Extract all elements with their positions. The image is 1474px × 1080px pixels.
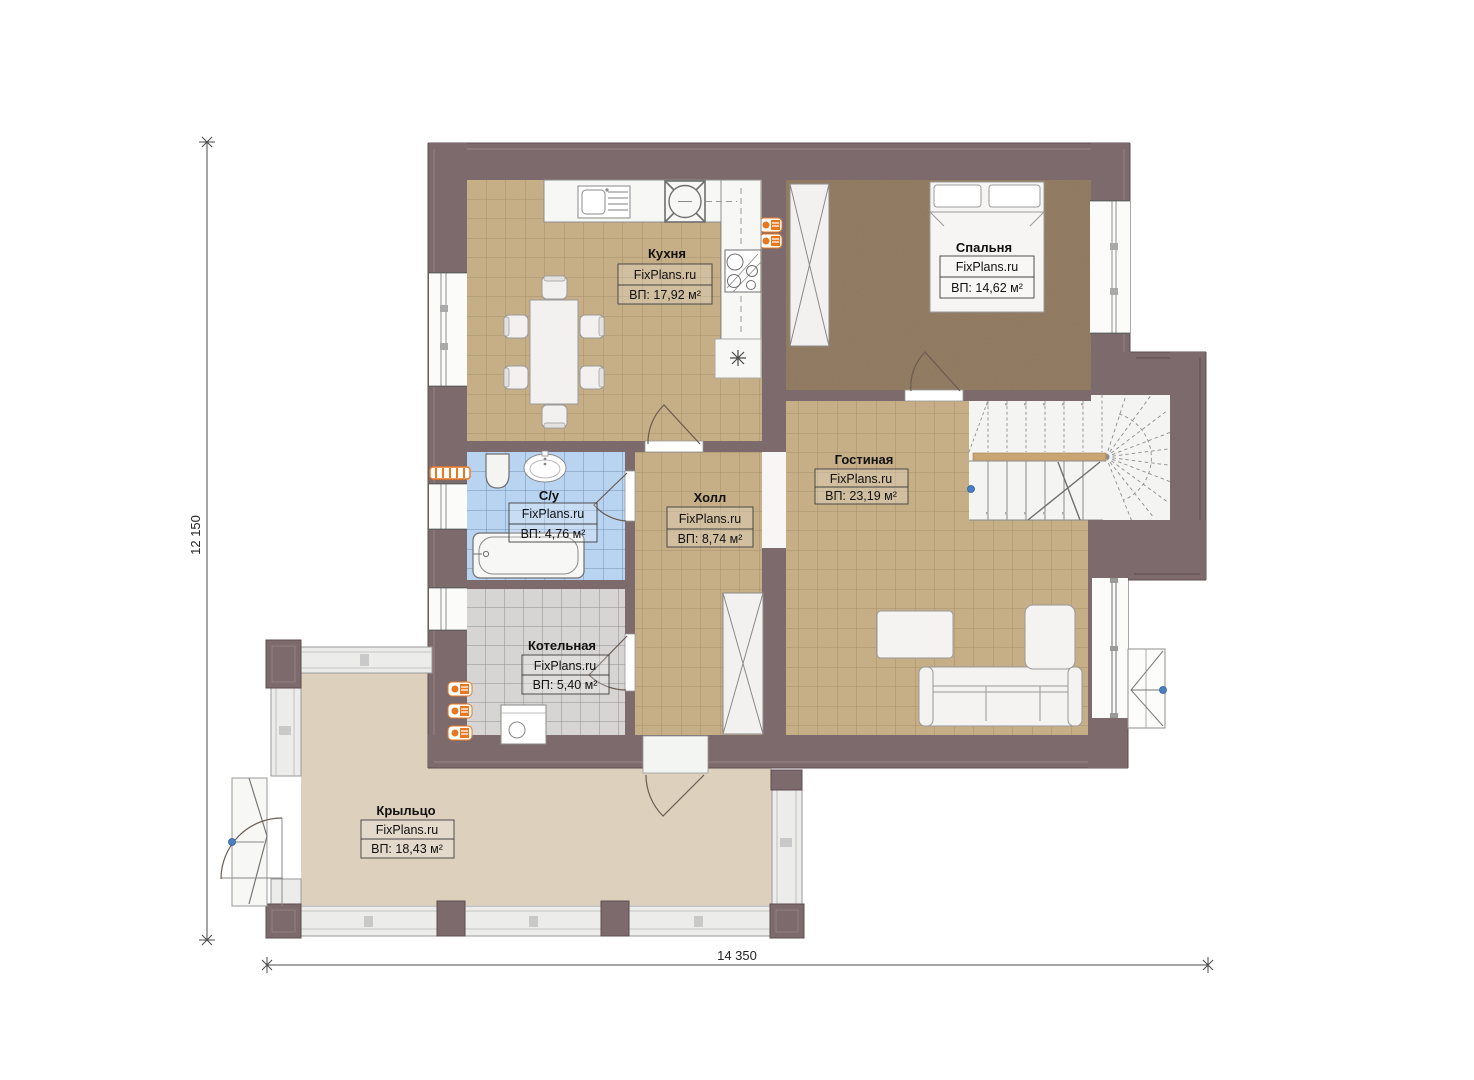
svg-text:14 350: 14 350 [717,948,757,963]
svg-text:FixPlans.ru: FixPlans.ru [534,659,597,673]
svg-text:ВП: 8,74 м²: ВП: 8,74 м² [678,532,743,546]
svg-text:FixPlans.ru: FixPlans.ru [522,507,585,521]
svg-text:Спальня: Спальня [956,240,1012,255]
svg-text:Крыльцо: Крыльцо [376,803,435,818]
svg-text:12 150: 12 150 [188,515,203,555]
svg-text:ВП: 18,43 м²: ВП: 18,43 м² [371,842,443,856]
svg-text:С/у: С/у [539,488,560,503]
svg-text:FixPlans.ru: FixPlans.ru [956,260,1019,274]
svg-text:Кухня: Кухня [648,246,686,261]
svg-text:FixPlans.ru: FixPlans.ru [634,268,697,282]
svg-text:Гостиная: Гостиная [835,452,894,467]
svg-text:ВП: 5,40 м²: ВП: 5,40 м² [533,678,598,692]
svg-text:FixPlans.ru: FixPlans.ru [830,472,893,486]
svg-text:ВП: 17,92 м²: ВП: 17,92 м² [629,288,701,302]
svg-text:FixPlans.ru: FixPlans.ru [376,823,439,837]
svg-text:Котельная: Котельная [528,638,596,653]
svg-text:ВП: 4,76 м²: ВП: 4,76 м² [521,527,586,541]
svg-text:ВП: 14,62 м²: ВП: 14,62 м² [951,281,1023,295]
svg-text:Холл: Холл [694,490,727,505]
svg-text:FixPlans.ru: FixPlans.ru [679,512,742,526]
svg-text:ВП: 23,19 м²: ВП: 23,19 м² [825,489,897,503]
